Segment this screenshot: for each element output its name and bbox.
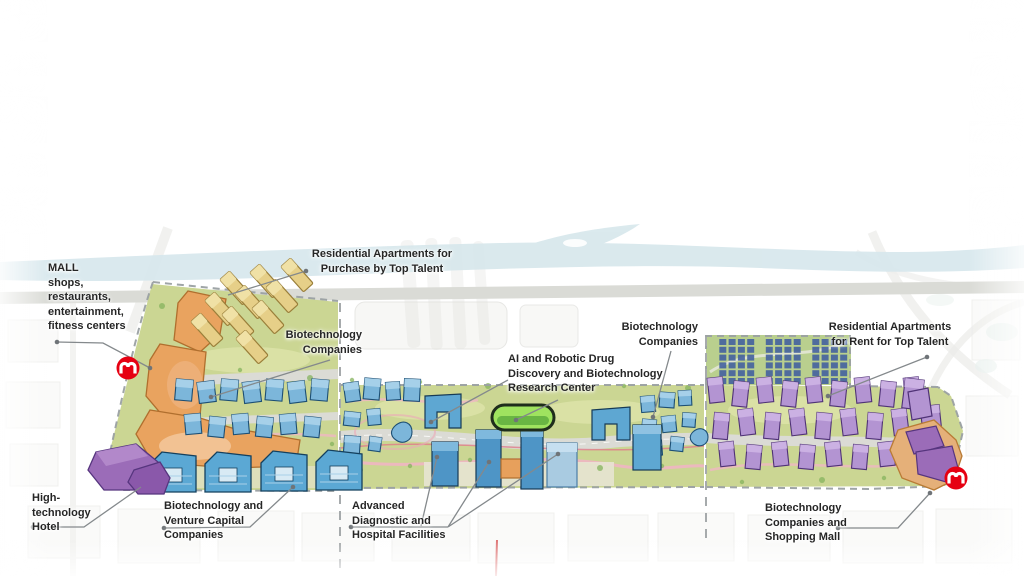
- label-residential-rent: Residential Apartments for Rent for Top …: [818, 320, 962, 349]
- residential-tower: [718, 441, 735, 466]
- tree: [350, 378, 354, 382]
- office-building: [220, 379, 239, 401]
- office-building: [343, 382, 360, 403]
- tree: [597, 465, 603, 471]
- label-biotech-right: Biotechnology Companies: [600, 320, 698, 349]
- tree: [238, 368, 242, 372]
- residential-tower: [712, 412, 729, 439]
- office-building: [640, 395, 655, 412]
- solar-panel: [775, 355, 782, 361]
- solar-panel: [831, 355, 838, 361]
- solar-panel: [766, 362, 773, 368]
- office-building: [367, 408, 381, 425]
- solar-panel: [784, 370, 791, 376]
- solar-panel: [719, 362, 726, 368]
- solar-panel: [840, 370, 847, 376]
- residential-tower: [732, 381, 750, 407]
- solar-panel: [766, 339, 773, 345]
- tree: [740, 480, 744, 484]
- solar-panel: [738, 355, 745, 361]
- tree: [408, 464, 412, 468]
- office-building: [690, 429, 708, 446]
- solar-panel: [812, 362, 819, 368]
- solar-panel: [831, 362, 838, 368]
- solar-panel: [738, 339, 745, 345]
- residential-tower: [738, 408, 756, 436]
- office-building: [208, 416, 226, 438]
- office-building: [265, 379, 284, 401]
- office-building: [279, 413, 297, 434]
- solar-panel: [729, 362, 736, 368]
- research-center-highlight: [492, 405, 554, 430]
- residential-tower: [707, 377, 725, 403]
- solar-panel: [775, 362, 782, 368]
- solar-panel: [719, 347, 726, 353]
- label-biotech-mall: Biotechnology Companies and Shopping Mal…: [765, 501, 881, 545]
- office-building: [232, 413, 250, 434]
- city-block: [10, 444, 58, 486]
- solar-panel: [729, 339, 736, 345]
- venture-building: [205, 452, 251, 492]
- residential-tower: [851, 444, 868, 469]
- label-ai-research: AI and Robotic Drug Discovery and Biotec…: [508, 352, 670, 396]
- city-block: [568, 515, 648, 561]
- solar-panel: [822, 362, 829, 368]
- solar-panel: [822, 378, 829, 384]
- office-building: [682, 413, 696, 428]
- solar-panel: [831, 370, 838, 376]
- solar-panel: [738, 347, 745, 353]
- office-building: [255, 416, 273, 438]
- label-biotech-venture: Biotechnology and Venture Capital Compan…: [164, 499, 288, 543]
- solar-panel: [784, 339, 791, 345]
- residential-tower: [805, 377, 823, 403]
- tree: [882, 476, 886, 480]
- office-building: [287, 381, 306, 404]
- solar-panel: [822, 370, 829, 376]
- city-block: [478, 513, 554, 563]
- solar-panel: [840, 362, 847, 368]
- office-building: [303, 416, 321, 438]
- venture-building: [316, 450, 362, 490]
- solar-panel: [729, 347, 736, 353]
- solar-panel: [747, 370, 754, 376]
- residential-tower: [756, 377, 774, 403]
- solar-panel: [738, 362, 745, 368]
- office-building: [368, 436, 382, 452]
- masterplan-map: MALL shops, restaurants, entertainment, …: [0, 0, 1024, 576]
- residential-tower: [771, 441, 788, 466]
- solar-panel: [840, 355, 847, 361]
- solar-panel: [729, 355, 736, 361]
- city-block: [658, 513, 734, 561]
- solar-panel: [784, 347, 791, 353]
- solar-panel: [719, 355, 726, 361]
- residential-tower: [745, 444, 762, 469]
- office-building: [184, 413, 202, 434]
- solar-panel: [794, 362, 801, 368]
- tree: [819, 477, 825, 483]
- solar-panel: [747, 347, 754, 353]
- label-mall: MALL shops, restaurants, entertainment, …: [48, 261, 160, 334]
- solar-panel: [747, 355, 754, 361]
- solar-panel: [766, 347, 773, 353]
- city-block: [966, 396, 1018, 456]
- label-hotel: High- technology Hotel: [32, 491, 124, 535]
- tree: [330, 442, 334, 446]
- city-block: [6, 382, 60, 428]
- residential-tower: [840, 408, 858, 436]
- office-building: [363, 378, 381, 400]
- label-hospital: Advanced Diagnostic and Hospital Facilit…: [352, 499, 478, 543]
- office-building: [661, 415, 677, 432]
- residential-tower: [781, 381, 799, 407]
- solar-panel: [766, 370, 773, 376]
- metro-station-icon: [117, 357, 140, 380]
- residential-tower: [764, 412, 781, 439]
- solar-panel: [812, 355, 819, 361]
- solar-panel: [766, 355, 773, 361]
- label-biotech-left: Biotechnology Companies: [262, 328, 362, 357]
- solar-panel: [738, 370, 745, 376]
- residential-tower: [798, 444, 815, 469]
- residential-tower: [854, 377, 872, 403]
- solar-panel: [719, 370, 726, 376]
- solar-panel: [794, 339, 801, 345]
- residential-tower: [815, 412, 832, 439]
- residential-tower: [825, 441, 842, 466]
- solar-panel: [794, 370, 801, 376]
- solar-panel: [719, 339, 726, 345]
- label-residential-purchase: Residential Apartments for Purchase by T…: [298, 247, 466, 276]
- office-building: [678, 390, 692, 406]
- city-block: [936, 509, 1012, 563]
- solar-panel: [747, 339, 754, 345]
- solar-panel: [812, 370, 819, 376]
- solar-panel: [729, 370, 736, 376]
- residential-tower: [879, 381, 897, 407]
- office-building: [403, 379, 420, 402]
- office-building: [670, 436, 684, 451]
- solar-panel: [775, 378, 782, 384]
- solar-panel: [775, 347, 782, 353]
- office-building: [197, 381, 216, 404]
- solar-panel: [784, 362, 791, 368]
- solar-panel: [747, 362, 754, 368]
- office-building: [175, 379, 194, 401]
- office-building: [343, 411, 360, 427]
- solar-panel: [775, 339, 782, 345]
- residential-tower: [866, 412, 883, 439]
- river-island: [563, 239, 587, 247]
- solar-panel: [784, 355, 791, 361]
- office-building: [310, 379, 329, 401]
- solar-panel: [775, 370, 782, 376]
- metro-line: [496, 540, 497, 576]
- residential-tower: [789, 408, 807, 436]
- solar-panel: [822, 355, 829, 361]
- metro-station-icon: [945, 467, 968, 490]
- solar-panel: [794, 355, 801, 361]
- office-building: [385, 382, 400, 401]
- venture-building: [261, 451, 307, 491]
- tree: [468, 458, 472, 462]
- solar-panel: [794, 347, 801, 353]
